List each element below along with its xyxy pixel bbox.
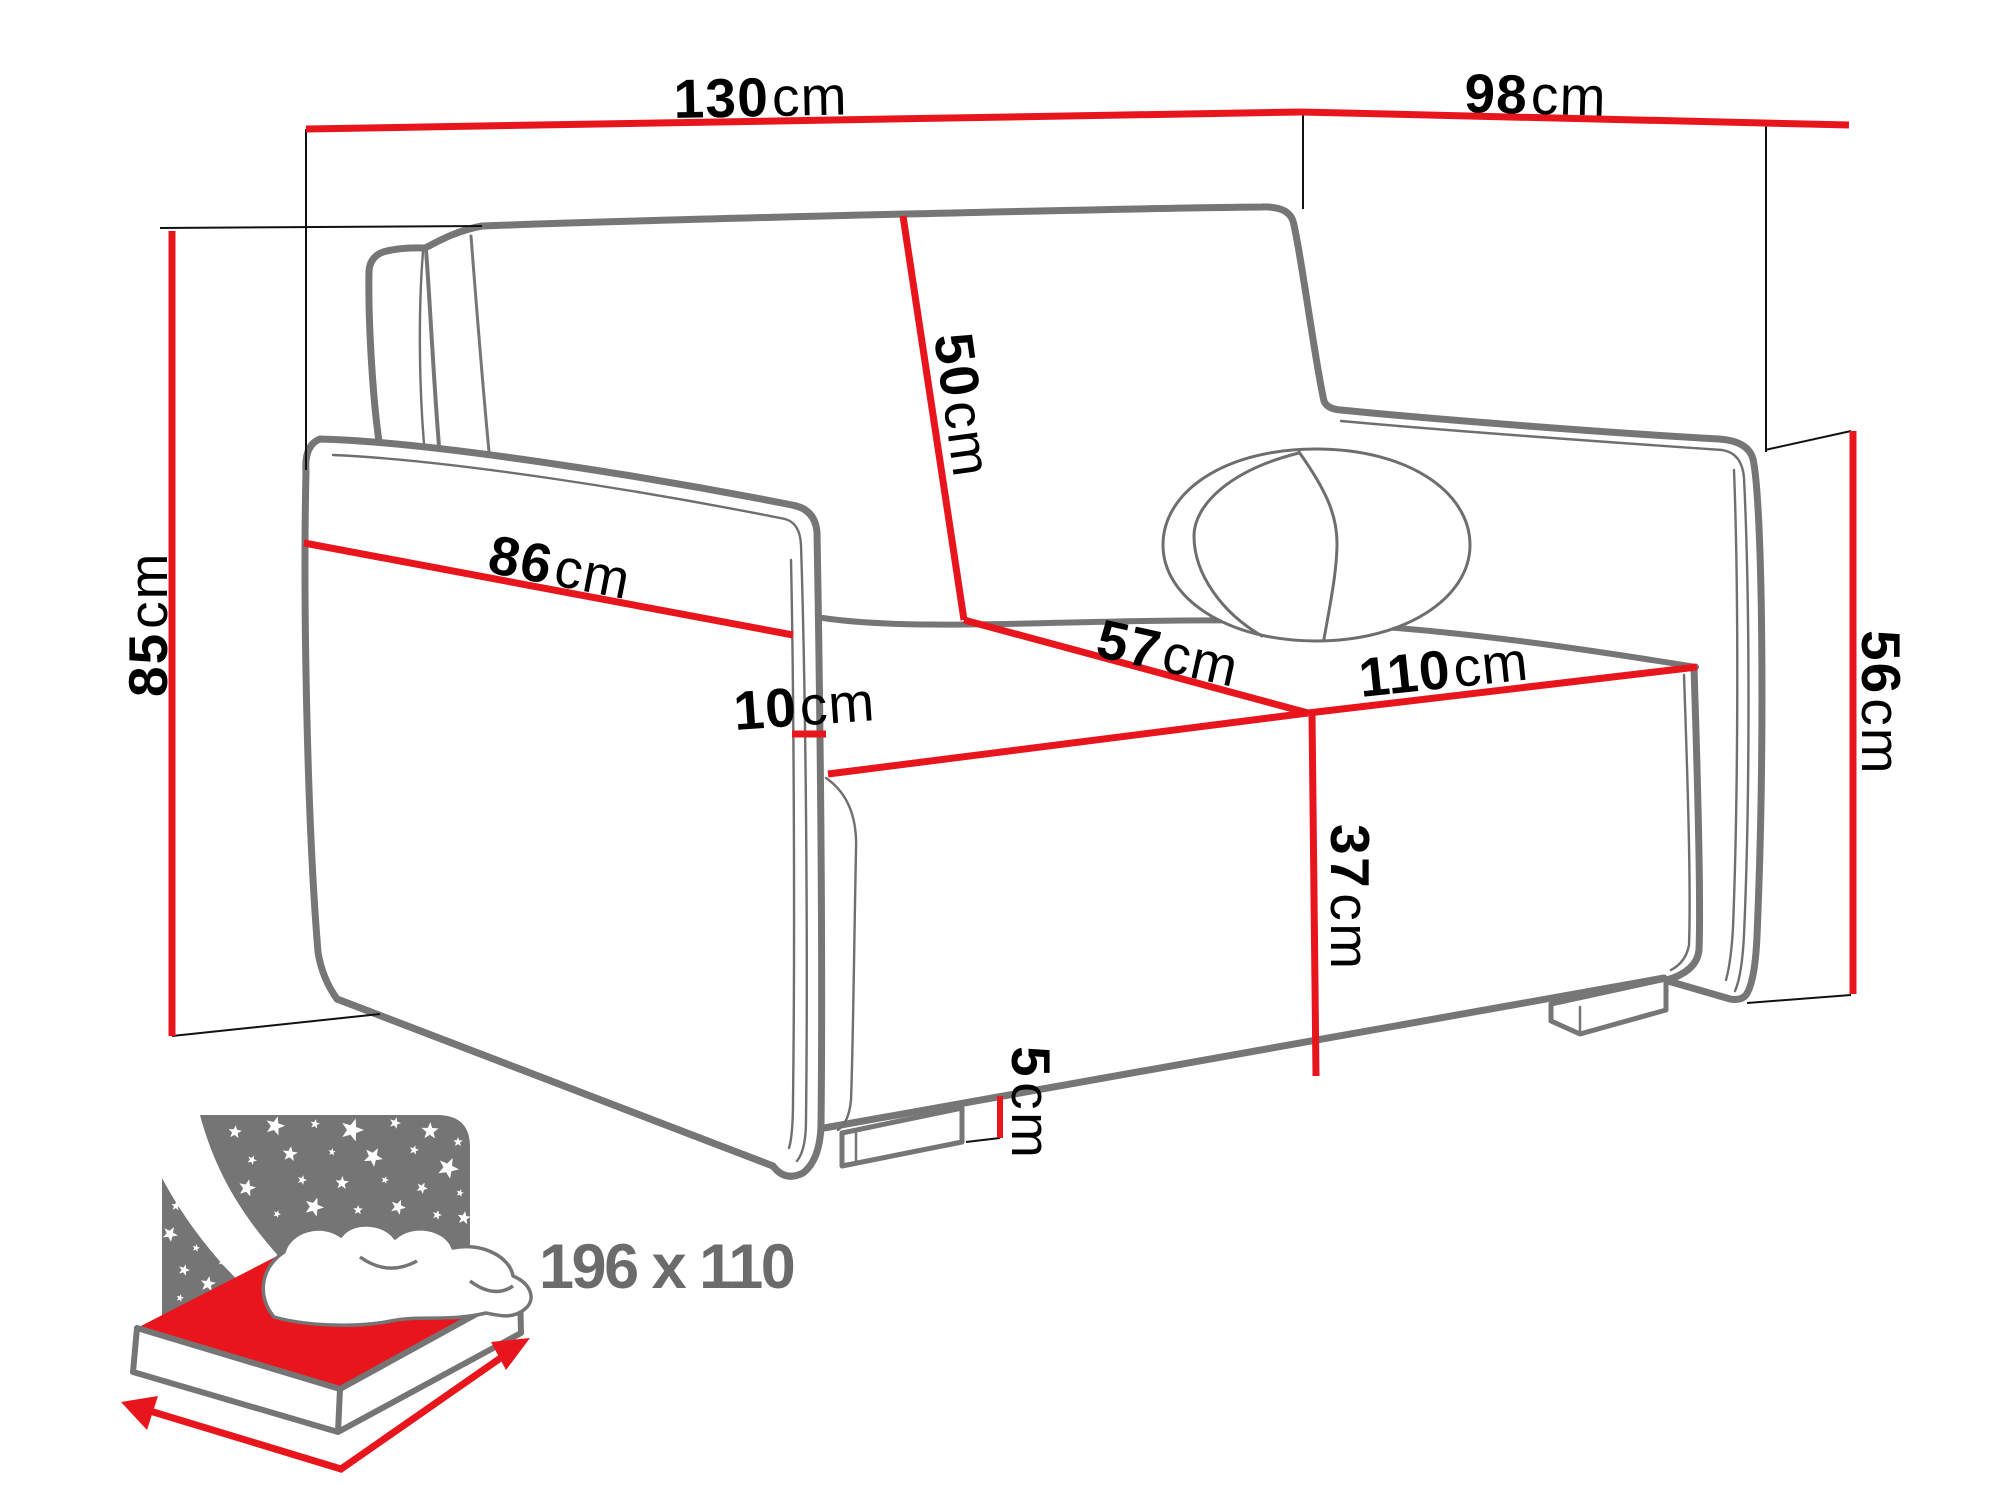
svg-text:10cm: 10cm: [732, 670, 877, 742]
svg-text:85cm: 85cm: [117, 551, 179, 697]
svg-text:37cm: 37cm: [1319, 824, 1381, 972]
svg-text:196 x 110: 196 x 110: [539, 1232, 794, 1302]
svg-text:56cm: 56cm: [1850, 630, 1912, 776]
svg-text:98cm: 98cm: [1464, 62, 1608, 128]
svg-text:130cm: 130cm: [673, 64, 848, 130]
svg-text:5cm: 5cm: [1000, 1046, 1062, 1160]
